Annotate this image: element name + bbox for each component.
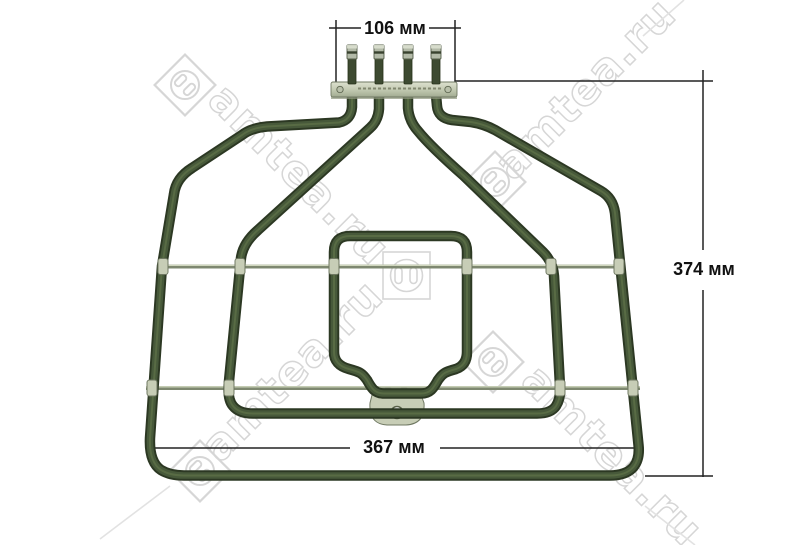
terminal-pin	[431, 45, 441, 84]
clamp	[614, 259, 624, 275]
clamp	[546, 259, 556, 275]
mounting-bracket	[331, 45, 457, 99]
watermark-text: amtea.ru	[485, 0, 686, 190]
clamp	[235, 259, 245, 275]
dimension-label-top-width: 106 мм	[364, 18, 426, 38]
terminal-pin	[403, 45, 413, 84]
terminal-pin	[347, 45, 357, 84]
clamp	[555, 380, 565, 396]
bracket-screw	[337, 86, 343, 92]
product-image: amtea.ru amtea.ru amtea.ru amtea.ru	[0, 0, 800, 545]
watermark-hairline	[100, 486, 170, 539]
product-photo: amtea.ru amtea.ru amtea.ru amtea.ru	[0, 0, 800, 545]
dimension-label-bottom-width: 367 мм	[363, 437, 425, 457]
clamp	[158, 259, 168, 275]
terminal-pins	[347, 45, 441, 84]
clamp	[224, 380, 234, 396]
bracket-screw	[445, 86, 451, 92]
watermark-text: amtea.ru	[198, 74, 399, 275]
clamp	[462, 259, 472, 275]
clamp	[329, 259, 339, 275]
amtea-center-logo-icon	[383, 252, 430, 299]
clamp	[628, 380, 638, 396]
terminal-pin	[374, 45, 384, 84]
dimension-label-height: 374 мм	[673, 259, 735, 279]
clamp	[147, 380, 157, 396]
watermark-text: amtea.ru	[511, 355, 712, 545]
